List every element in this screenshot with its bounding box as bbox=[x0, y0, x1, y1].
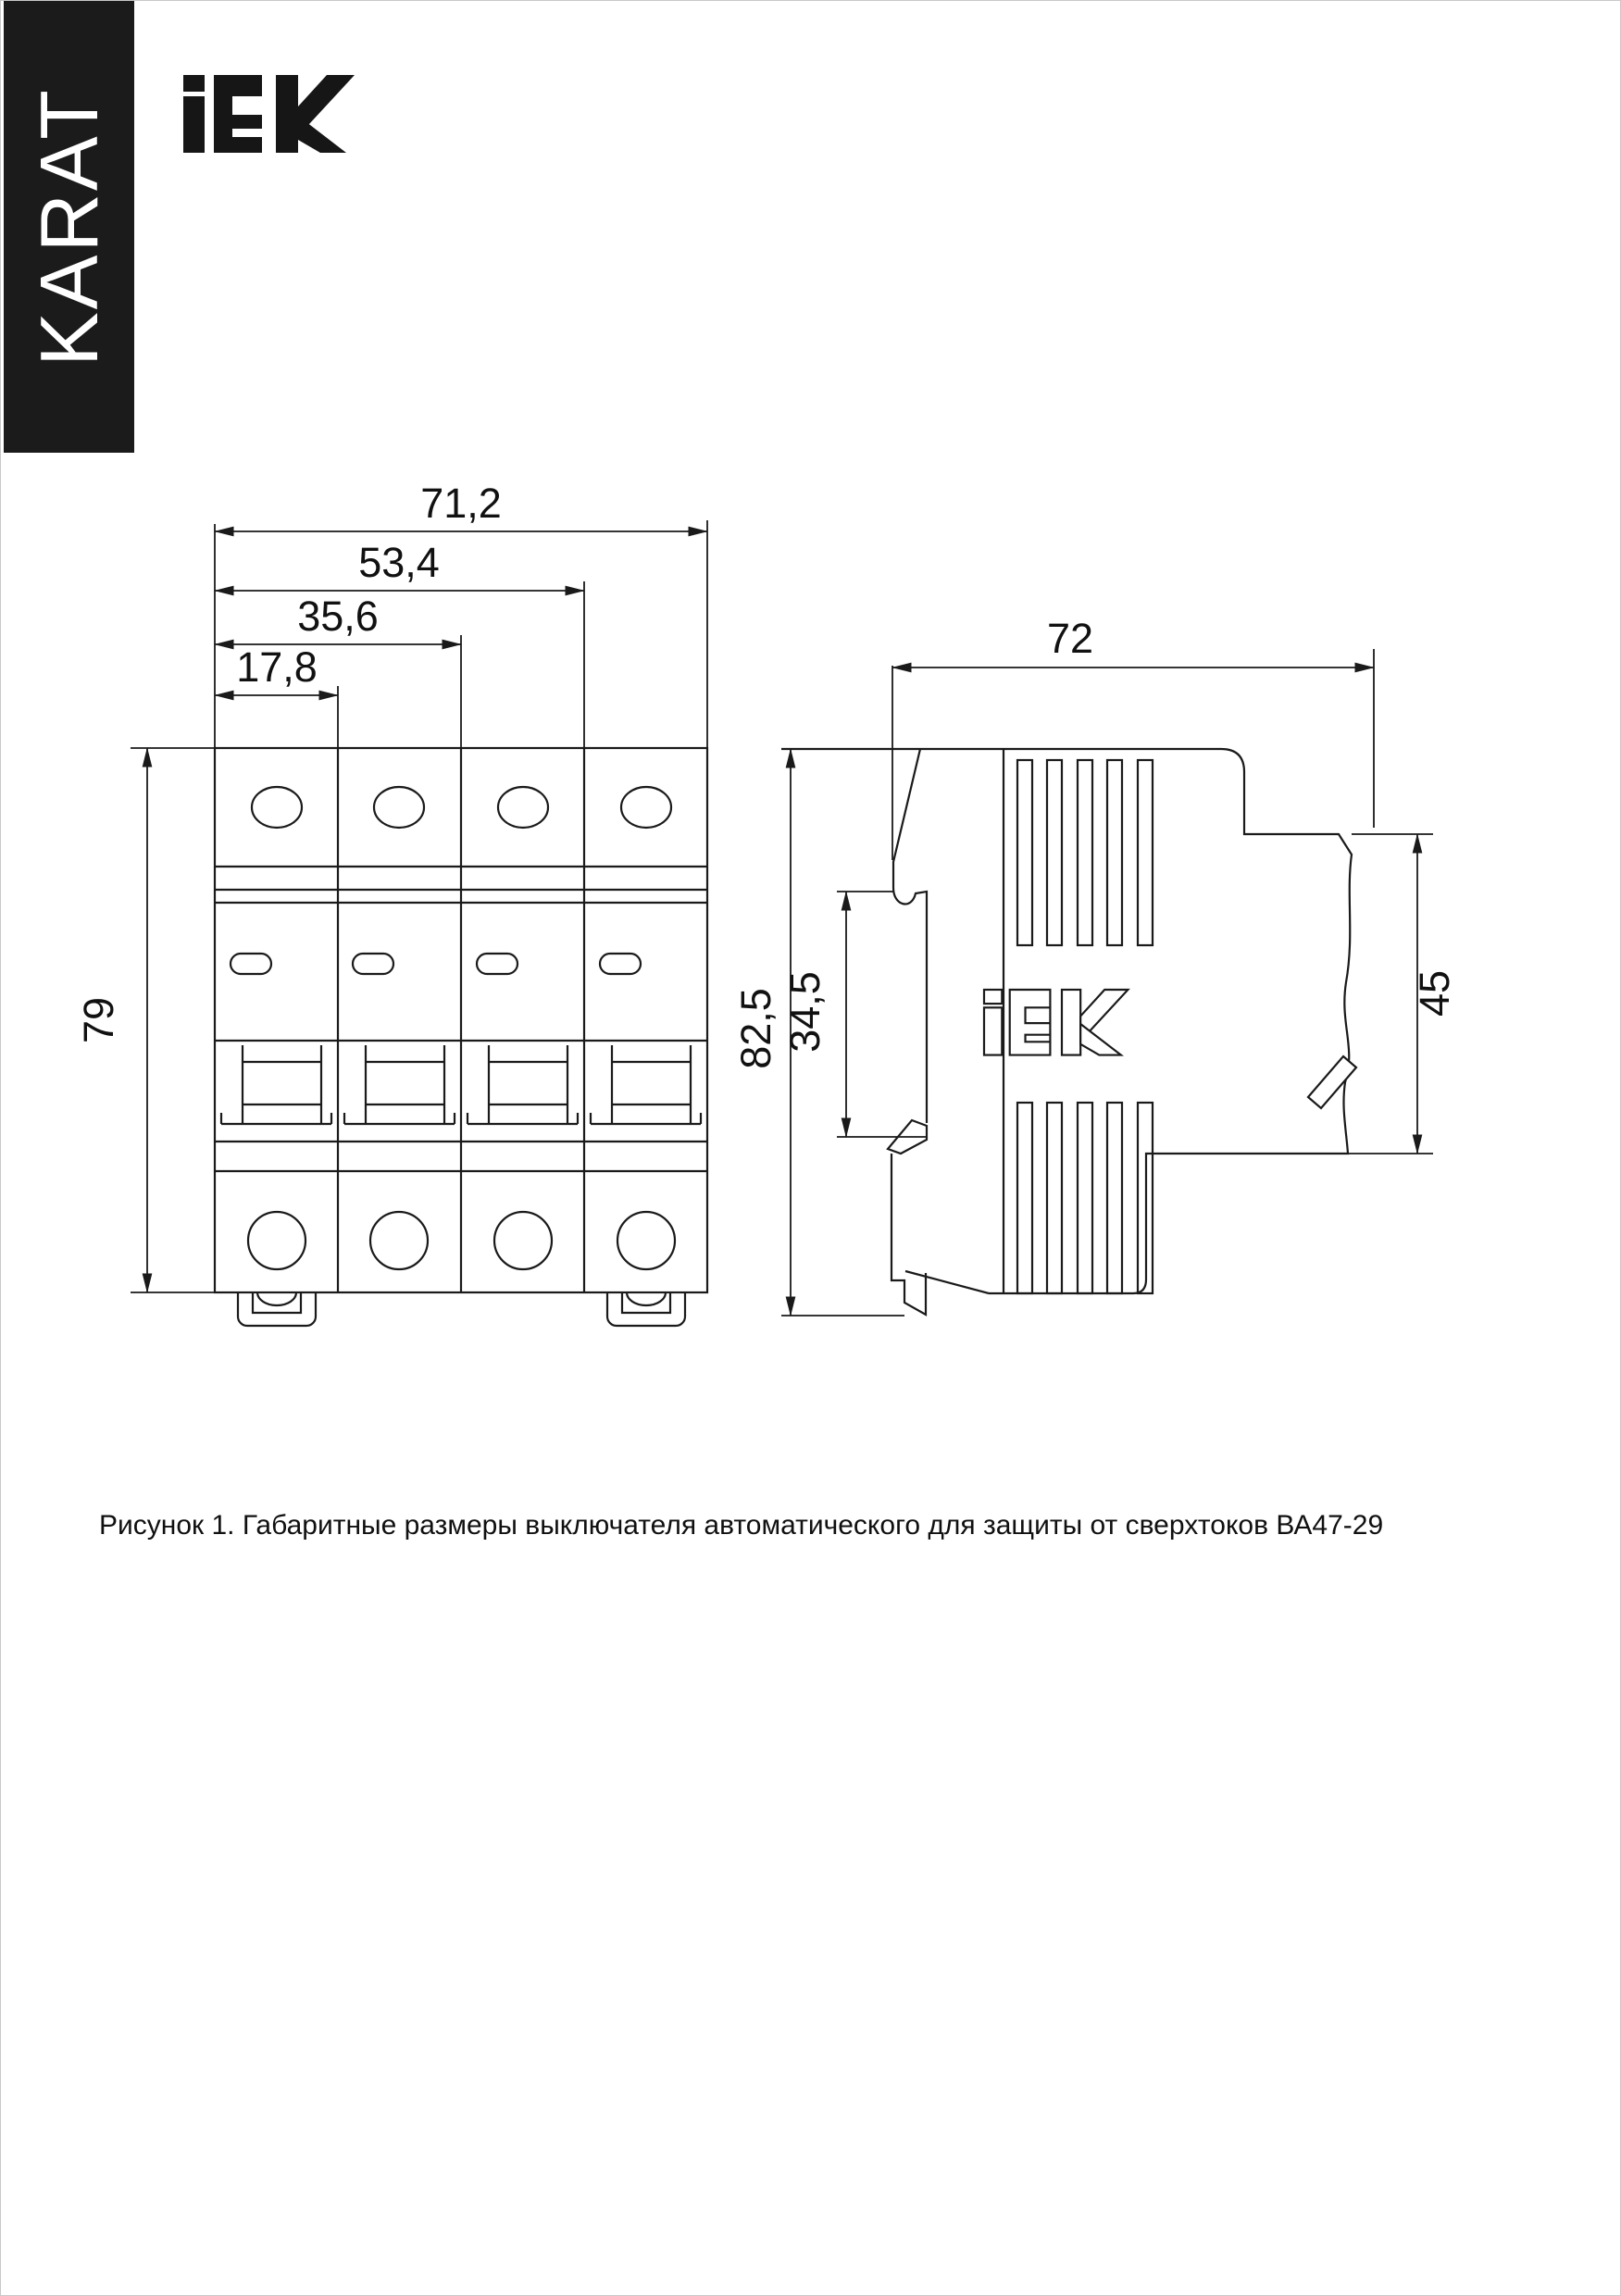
iek-logo bbox=[183, 75, 355, 153]
dim-label-side-height: 82,5 bbox=[732, 988, 779, 1069]
dim-label-width-total: 71,2 bbox=[420, 480, 502, 527]
front-label-windows bbox=[231, 954, 641, 974]
catalog-page: KARAT Рисунок 1. Габаритные размеры выкл… bbox=[0, 0, 1621, 2296]
front-view-body bbox=[215, 748, 707, 1292]
dim-label-width-1pole: 17,8 bbox=[236, 643, 318, 691]
front-dimension-lines bbox=[131, 520, 707, 1292]
side-view-drawing: 72 82,5 34,5 45 bbox=[732, 615, 1458, 1316]
front-din-clips bbox=[238, 1292, 685, 1326]
dim-label-width-3poles: 53,4 bbox=[358, 539, 440, 586]
dim-label-front-height: 79 bbox=[75, 997, 122, 1043]
dim-label-width-2poles: 35,6 bbox=[297, 593, 379, 640]
front-view-drawing: 71,2 53,4 35,6 17,8 79 bbox=[75, 480, 707, 1326]
iek-logo-embossed bbox=[984, 990, 1128, 1055]
dimensional-drawing: 71,2 53,4 35,6 17,8 79 bbox=[1, 1, 1621, 2296]
dim-label-terminal-zone: 45 bbox=[1411, 970, 1458, 1017]
dim-label-depth: 72 bbox=[1047, 615, 1093, 662]
dim-label-din-zone: 34,5 bbox=[781, 971, 829, 1053]
